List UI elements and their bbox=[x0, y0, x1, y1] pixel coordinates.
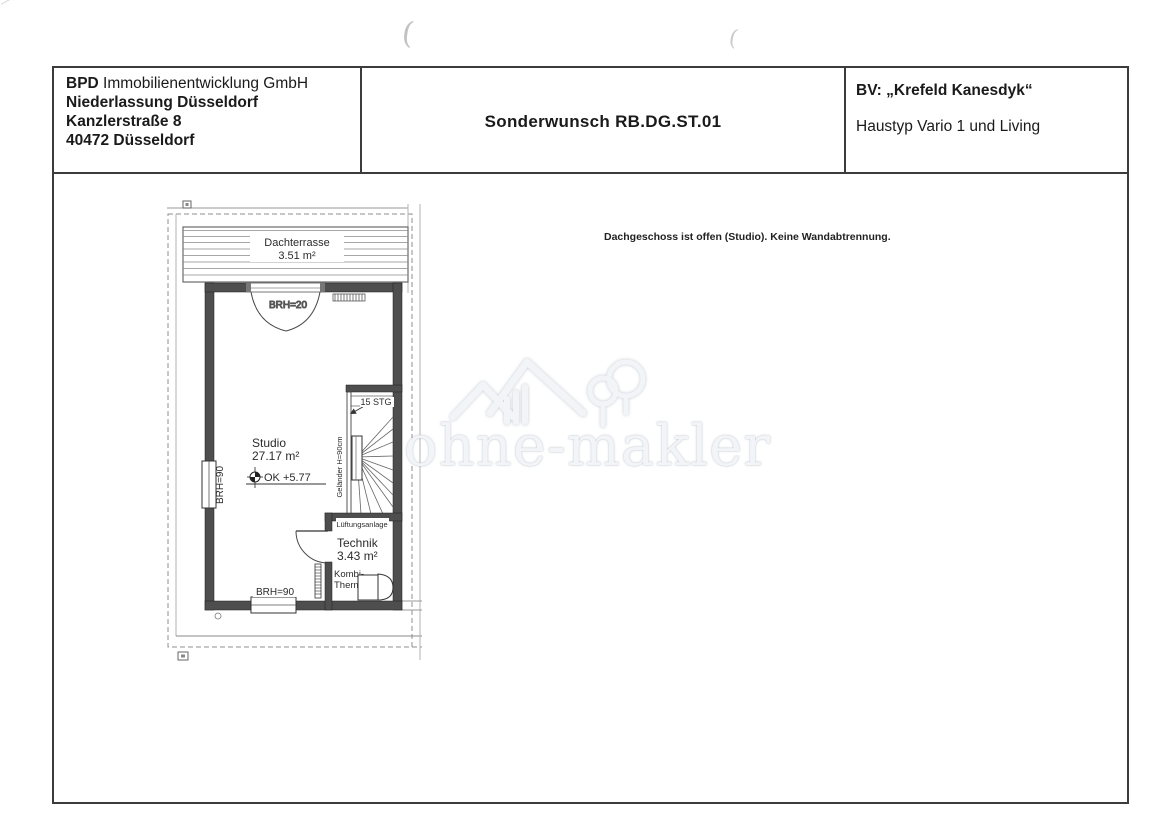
scanned-plan-page: ( ( BPD Immobilienentwicklung GmbH Niede… bbox=[0, 0, 1172, 830]
level-mark-label: OK +5.77 bbox=[264, 472, 311, 484]
staircase: 15 STG Geländer H=90cm bbox=[335, 385, 402, 515]
room-label-studio: Studio bbox=[252, 436, 286, 450]
radiator-symbol bbox=[315, 564, 321, 598]
roof-terrace: Dachterrasse 3.51 m² bbox=[183, 227, 408, 282]
stair-count-label: 15 STG bbox=[360, 397, 391, 407]
room-label-technik: Technik bbox=[337, 536, 379, 550]
room-area-studio: 27.17 m² bbox=[252, 449, 299, 463]
window-bottom-sill-label: BRH=90 bbox=[256, 587, 295, 598]
room-area-technik: 3.43 m² bbox=[337, 549, 378, 563]
floor-plan: Dachterrasse 3.51 m² BRH=20 bbox=[0, 0, 1172, 830]
boiler-symbol bbox=[358, 575, 378, 600]
room-area-dachterrasse: 3.51 m² bbox=[278, 250, 316, 262]
technik-room: Lüftungsanlage Technik 3.43 m² Kombi- Th… bbox=[296, 513, 402, 610]
railing-label: Geländer H=90cm bbox=[335, 436, 344, 497]
door-sill-label: BRH=20 bbox=[269, 300, 308, 311]
wall-hatch-strip bbox=[333, 294, 365, 301]
window-left: BRH=90 bbox=[202, 461, 226, 508]
ventilation-label: Lüftungsanlage bbox=[336, 520, 387, 529]
studio-labels: Studio 27.17 m² OK +5.77 bbox=[246, 436, 326, 488]
terrace-door: BRH=20 bbox=[246, 283, 325, 331]
room-label-dachterrasse: Dachterrasse bbox=[264, 237, 329, 249]
window-left-sill-label: BRH=90 bbox=[215, 466, 226, 505]
